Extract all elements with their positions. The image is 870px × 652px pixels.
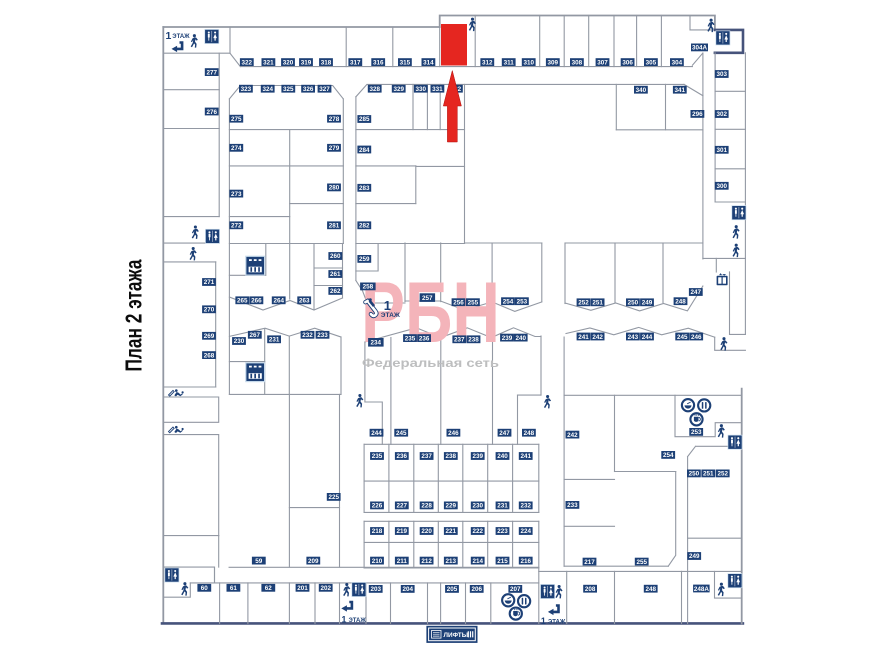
svg-text:ЭТАЖ: ЭТАЖ [349, 618, 367, 624]
svg-text:208: 208 [585, 586, 596, 593]
svg-text:207: 207 [510, 586, 521, 593]
svg-text:300: 300 [716, 183, 727, 190]
svg-text:250: 250 [628, 300, 639, 307]
svg-text:273: 273 [231, 191, 242, 198]
svg-text:341: 341 [675, 87, 686, 94]
svg-text:228: 228 [421, 503, 432, 510]
svg-text:268: 268 [204, 352, 215, 359]
svg-text:253: 253 [691, 429, 702, 436]
svg-text:304A: 304A [692, 45, 708, 52]
svg-text:254: 254 [503, 298, 514, 305]
svg-text:324: 324 [262, 86, 273, 93]
svg-text:319: 319 [301, 59, 312, 66]
svg-text:303: 303 [716, 71, 727, 78]
svg-text:219: 219 [397, 528, 408, 535]
svg-text:248A: 248A [694, 586, 710, 593]
svg-text:224: 224 [520, 528, 531, 535]
svg-text:236: 236 [419, 335, 430, 342]
svg-text:243: 243 [628, 334, 639, 341]
svg-text:327: 327 [319, 86, 330, 93]
svg-text:330: 330 [416, 86, 427, 93]
svg-text:259: 259 [359, 256, 370, 263]
svg-text:254: 254 [663, 452, 674, 459]
svg-text:248: 248 [675, 298, 686, 305]
svg-text:322: 322 [242, 59, 253, 66]
svg-text:217: 217 [584, 559, 595, 566]
svg-text:276: 276 [206, 109, 217, 116]
svg-text:267: 267 [250, 332, 261, 339]
svg-text:249: 249 [689, 553, 700, 560]
svg-text:241: 241 [578, 334, 589, 341]
svg-text:310: 310 [523, 59, 534, 66]
svg-text:244: 244 [371, 430, 382, 437]
svg-text:251: 251 [592, 300, 603, 307]
svg-text:280: 280 [329, 185, 340, 192]
svg-text:244: 244 [642, 334, 653, 341]
svg-text:253: 253 [517, 298, 528, 305]
svg-text:60: 60 [201, 585, 209, 592]
svg-text:202: 202 [320, 585, 331, 592]
svg-text:245: 245 [677, 334, 688, 341]
svg-text:ЛИФТЫ: ЛИФТЫ [444, 632, 468, 639]
svg-text:249: 249 [642, 300, 653, 307]
svg-text:281: 281 [329, 223, 340, 230]
svg-text:331: 331 [432, 86, 443, 93]
svg-text:1: 1 [166, 30, 172, 42]
svg-text:213: 213 [446, 558, 457, 565]
svg-text:247: 247 [499, 430, 510, 437]
svg-text:248: 248 [645, 586, 656, 593]
svg-text:221: 221 [446, 528, 457, 535]
svg-text:255: 255 [636, 559, 647, 566]
svg-text:232: 232 [302, 332, 313, 339]
svg-text:308: 308 [572, 59, 583, 66]
svg-text:239: 239 [472, 453, 483, 460]
svg-text:214: 214 [472, 558, 483, 565]
svg-text:223: 223 [497, 528, 508, 535]
svg-text:229: 229 [446, 503, 457, 510]
svg-text:325: 325 [283, 86, 294, 93]
svg-text:216: 216 [520, 558, 531, 565]
svg-text:242: 242 [567, 432, 578, 439]
svg-text:255: 255 [468, 299, 479, 306]
svg-text:1: 1 [342, 614, 347, 624]
svg-text:318: 318 [321, 59, 332, 66]
svg-text:59: 59 [255, 558, 263, 565]
svg-text:314: 314 [423, 59, 434, 66]
svg-text:311: 311 [504, 59, 515, 66]
svg-text:265: 265 [237, 298, 248, 305]
svg-text:279: 279 [329, 145, 340, 152]
svg-text:269: 269 [204, 333, 215, 340]
svg-text:252: 252 [717, 471, 728, 478]
svg-text:230: 230 [472, 503, 483, 510]
svg-text:340: 340 [636, 87, 647, 94]
svg-text:275: 275 [231, 116, 242, 123]
svg-text:277: 277 [206, 69, 217, 76]
svg-text:317: 317 [350, 59, 361, 66]
svg-text:283: 283 [359, 185, 370, 192]
svg-text:222: 222 [472, 528, 483, 535]
svg-text:233: 233 [317, 332, 328, 339]
svg-text:План 2 этажа: План 2 этажа [121, 259, 147, 371]
svg-text:234: 234 [371, 340, 382, 347]
svg-text:301: 301 [716, 147, 727, 154]
svg-text:240: 240 [515, 335, 526, 342]
svg-text:205: 205 [447, 586, 458, 593]
svg-text:315: 315 [400, 59, 411, 66]
svg-text:323: 323 [241, 86, 252, 93]
svg-text:250: 250 [689, 471, 700, 478]
svg-text:231: 231 [497, 503, 508, 510]
svg-text:237: 237 [421, 453, 432, 460]
svg-text:1: 1 [541, 616, 546, 626]
svg-text:321: 321 [263, 59, 274, 66]
svg-text:304: 304 [672, 59, 683, 66]
svg-text:245: 245 [396, 430, 407, 437]
svg-text:ЭТАЖ: ЭТАЖ [548, 620, 566, 626]
svg-text:278: 278 [329, 116, 340, 123]
svg-text:235: 235 [372, 453, 383, 460]
svg-text:239: 239 [502, 335, 513, 342]
svg-text:302: 302 [716, 111, 727, 118]
svg-text:ЭТАЖ: ЭТАЖ [381, 312, 400, 319]
svg-text:238: 238 [446, 453, 457, 460]
svg-text:309: 309 [548, 59, 559, 66]
svg-text:271: 271 [204, 279, 215, 286]
svg-text:215: 215 [497, 558, 508, 565]
svg-text:230: 230 [234, 338, 245, 345]
svg-text:306: 306 [622, 59, 633, 66]
svg-text:270: 270 [204, 307, 215, 314]
svg-text:264: 264 [273, 298, 284, 305]
svg-text:ЭТАЖ: ЭТАЖ [172, 34, 190, 40]
svg-text:272: 272 [231, 223, 242, 230]
svg-text:274: 274 [231, 145, 242, 152]
svg-text:212: 212 [421, 558, 432, 565]
svg-text:247: 247 [691, 289, 702, 296]
svg-text:232: 232 [520, 503, 531, 510]
svg-text:326: 326 [303, 86, 314, 93]
svg-text:328: 328 [369, 86, 380, 93]
svg-text:209: 209 [308, 558, 319, 565]
svg-text:316: 316 [373, 59, 384, 66]
svg-text:312: 312 [482, 59, 493, 66]
svg-text:210: 210 [372, 558, 383, 565]
svg-text:61: 61 [230, 585, 238, 592]
svg-text:307: 307 [597, 59, 608, 66]
svg-text:206: 206 [471, 586, 482, 593]
svg-text:248: 248 [524, 430, 535, 437]
svg-text:211: 211 [397, 558, 408, 565]
svg-text:246: 246 [691, 334, 702, 341]
svg-text:231: 231 [269, 337, 280, 344]
svg-text:227: 227 [397, 503, 408, 510]
svg-text:266: 266 [251, 298, 262, 305]
svg-text:320: 320 [283, 59, 294, 66]
svg-text:296: 296 [692, 111, 703, 118]
svg-text:242: 242 [592, 334, 603, 341]
svg-text:256: 256 [453, 299, 464, 306]
svg-text:282: 282 [359, 223, 370, 230]
svg-text:257: 257 [422, 295, 433, 302]
svg-text:237: 237 [454, 337, 465, 344]
svg-text:329: 329 [393, 86, 404, 93]
svg-text:258: 258 [363, 284, 374, 291]
svg-text:241: 241 [520, 453, 531, 460]
svg-text:225: 225 [328, 494, 339, 501]
svg-text:262: 262 [330, 288, 341, 295]
svg-text:203: 203 [370, 586, 381, 593]
svg-text:Федеральная сеть: Федеральная сеть [362, 358, 499, 370]
svg-text:240: 240 [497, 453, 508, 460]
svg-text:260: 260 [330, 253, 341, 260]
svg-text:235: 235 [405, 335, 416, 342]
svg-text:261: 261 [330, 271, 341, 278]
svg-text:201: 201 [297, 585, 308, 592]
svg-text:284: 284 [359, 147, 370, 154]
svg-text:246: 246 [448, 430, 459, 437]
svg-text:62: 62 [265, 585, 273, 592]
svg-text:220: 220 [421, 528, 432, 535]
svg-text:285: 285 [359, 116, 370, 123]
svg-text:226: 226 [372, 503, 383, 510]
svg-text:204: 204 [402, 586, 413, 593]
svg-text:305: 305 [646, 59, 657, 66]
svg-text:233: 233 [567, 502, 578, 509]
svg-text:252: 252 [578, 300, 589, 307]
svg-text:238: 238 [468, 337, 479, 344]
svg-text:236: 236 [397, 453, 408, 460]
svg-text:263: 263 [299, 298, 310, 305]
svg-text:218: 218 [372, 528, 383, 535]
svg-text:251: 251 [703, 471, 714, 478]
